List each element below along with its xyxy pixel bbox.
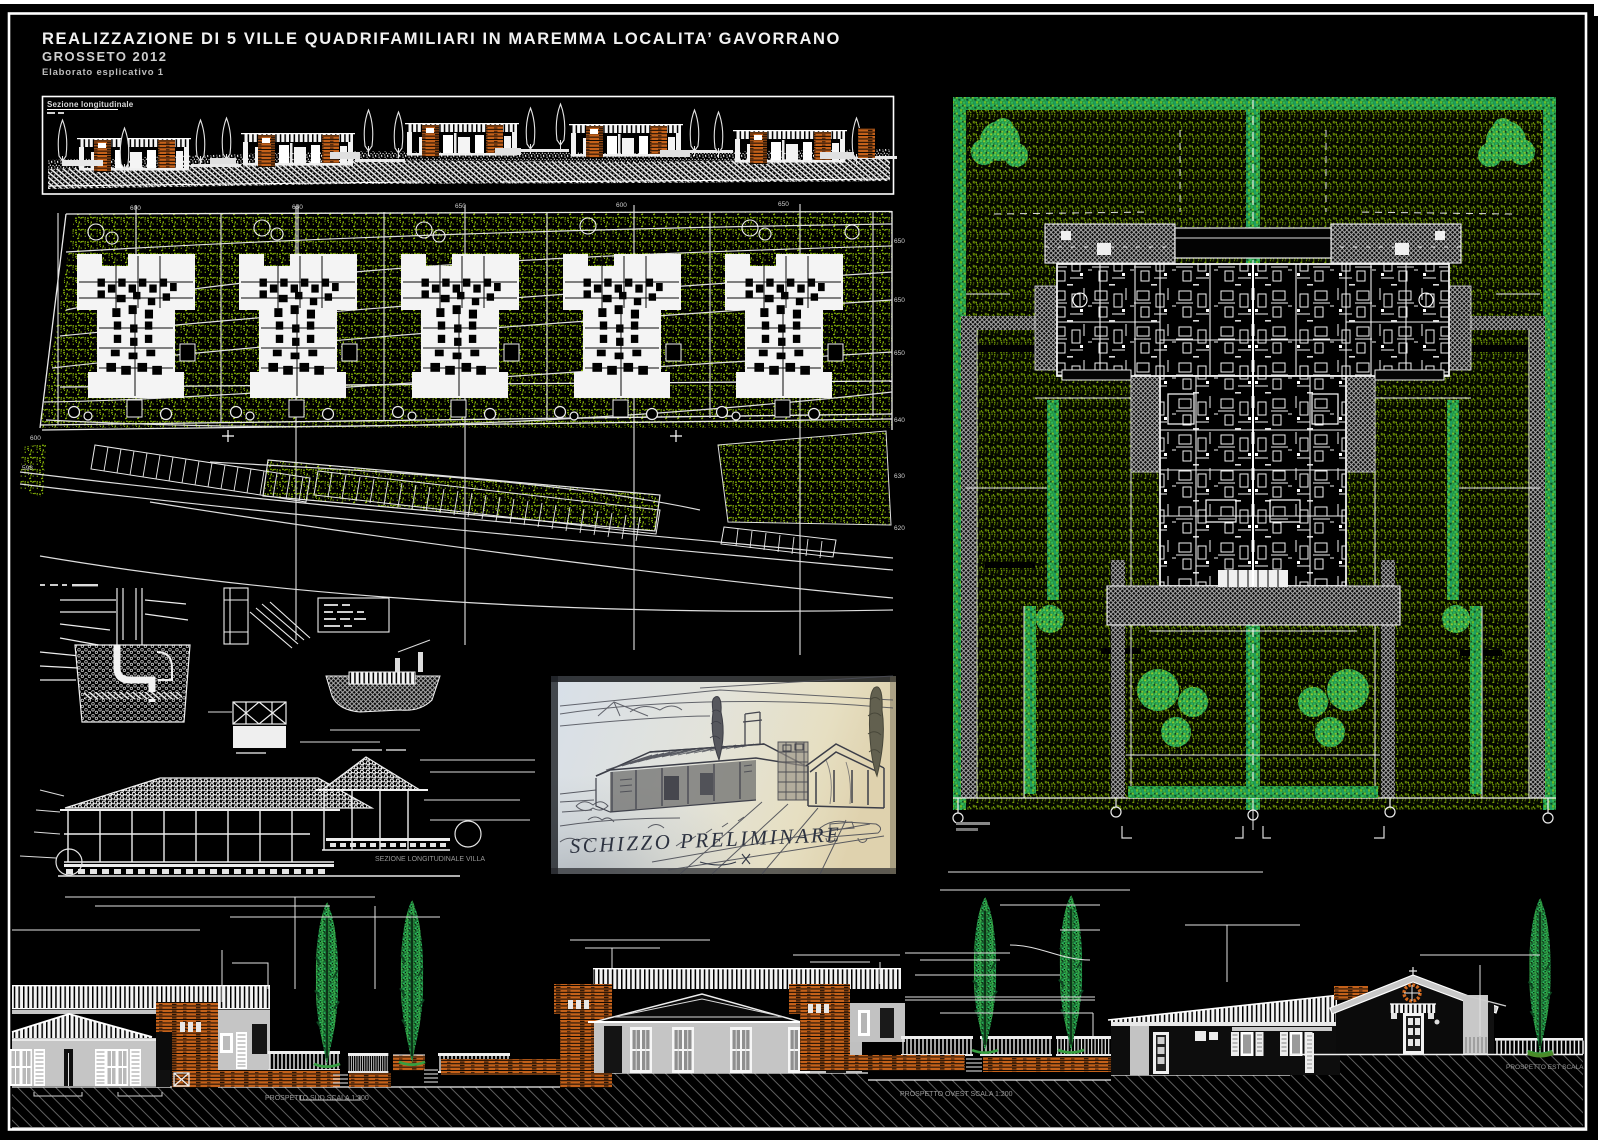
svg-text:650: 650 [778,201,789,208]
svg-text:600: 600 [130,205,141,212]
svg-text:GROSSETO 2012: GROSSETO 2012 [42,49,167,64]
svg-text:PROSPETTO SUD SCALA 1:200: PROSPETTO SUD SCALA 1:200 [265,1095,369,1102]
svg-text:640: 640 [894,417,905,424]
svg-text:REALIZZAZIONE DI 5 VILLE QUADR: REALIZZAZIONE DI 5 VILLE QUADRIFAMILIARI… [42,30,841,48]
svg-text:650: 650 [894,238,905,245]
svg-text:650: 650 [455,203,466,210]
svg-text:600: 600 [616,202,627,209]
svg-text:PROSPETTO EST SCALA: PROSPETTO EST SCALA [1506,1064,1584,1071]
svg-text:600: 600 [30,435,41,442]
svg-text:Elaborato esplicativo 1: Elaborato esplicativo 1 [42,67,164,78]
svg-text:630: 630 [894,473,905,480]
svg-text:598: 598 [22,465,33,472]
svg-text:SEZIONE LONGITUDINALE VILLA: SEZIONE LONGITUDINALE VILLA [375,856,485,863]
svg-text:650: 650 [894,350,905,357]
svg-text:Sezione longitudinale: Sezione longitudinale [47,100,134,109]
svg-text:PROSPETTO OVEST SCALA 1:200: PROSPETTO OVEST SCALA 1:200 [900,1091,1013,1098]
svg-text:620: 620 [894,525,905,532]
svg-text:650: 650 [894,297,905,304]
svg-text:650: 650 [292,204,303,211]
